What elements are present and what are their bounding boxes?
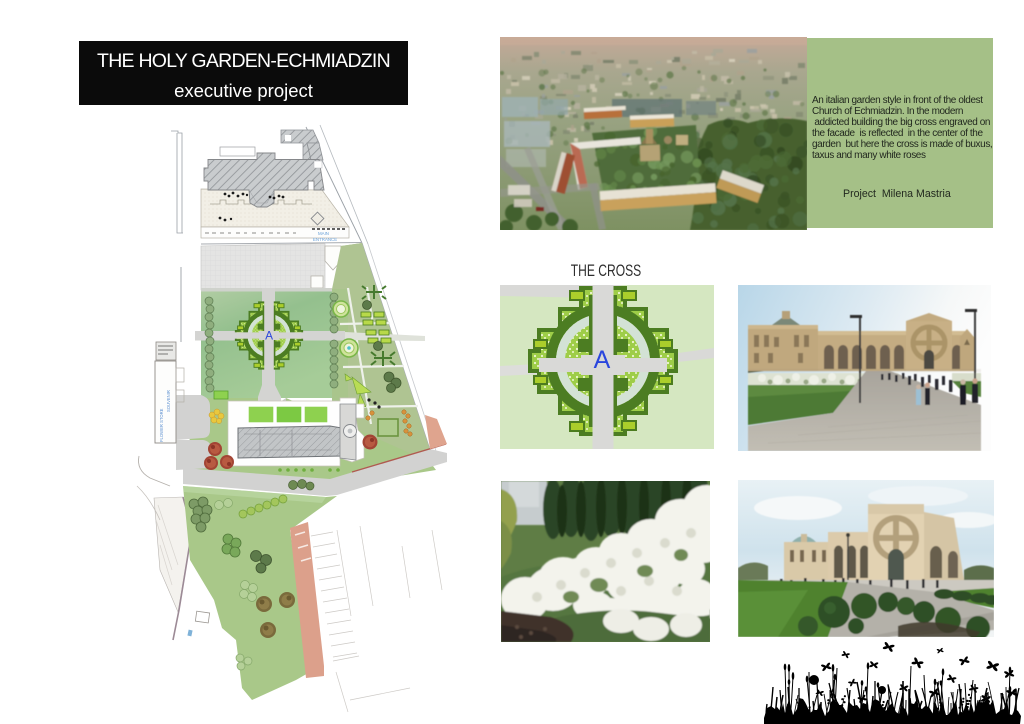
svg-text:FLOWER STORE: FLOWER STORE <box>159 408 164 442</box>
svg-text:A: A <box>265 329 273 343</box>
svg-text:MAIN: MAIN <box>318 231 329 236</box>
svg-text:ENTRANCE: ENTRANCE <box>313 237 337 242</box>
svg-text:SOUVENIR: SOUVENIR <box>166 390 171 412</box>
